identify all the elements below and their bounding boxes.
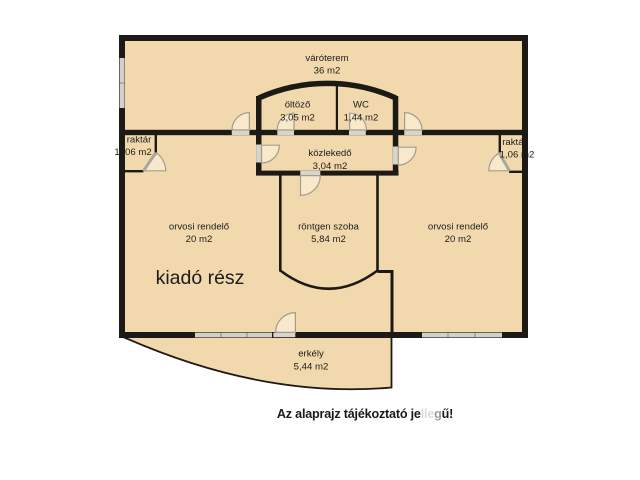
wall-top — [119, 35, 528, 41]
label-erkely-area: 5,44 m2 — [294, 362, 329, 373]
label-wc-area: 1,44 m2 — [344, 113, 379, 124]
label-raktar-right-area: 1,06 m2 — [500, 150, 535, 161]
caption-segment: Az alaprajz tájékoztató je — [277, 407, 421, 421]
wall-rontgen-right — [376, 176, 379, 272]
label-wc-name: WC — [353, 100, 369, 111]
floor-plan-page: váróterem 36 m2 öltöző 3,05 m2 WC 1,44 m… — [0, 0, 640, 480]
label-varoterem-name: váróterem — [305, 53, 348, 64]
label-orvosi-right-name: orvosi rendelő — [428, 222, 488, 233]
label-orvosi-left-name: orvosi rendelő — [169, 222, 229, 233]
label-raktar-right-name: raktár — [502, 137, 527, 148]
caption-segment: ű! — [442, 407, 454, 421]
caption-segment: lle — [421, 407, 435, 421]
wall-core-left — [256, 96, 262, 176]
label-oltozo-area: 3,05 m2 — [280, 113, 315, 124]
doorway-varoterem-left — [232, 130, 250, 135]
wall-raktar-left-side — [155, 135, 157, 153]
caption-text: Az alaprajz tájékoztató jellegű! — [277, 407, 453, 421]
wall-raktar-left-bottom — [122, 170, 144, 172]
label-varoterem-area: 36 m2 — [314, 66, 341, 77]
label-kozlekedo-area: 3,04 m2 — [313, 161, 348, 172]
label-orvosi-left-area: 20 m2 — [186, 234, 213, 245]
floor-plan: váróterem 36 m2 öltöző 3,05 m2 WC 1,44 m… — [0, 0, 640, 480]
label-kozlekedo-name: közlekedő — [308, 148, 351, 159]
window-bottom-right — [422, 333, 502, 338]
label-oltozo-name: öltöző — [285, 100, 311, 111]
doorway-oltozo — [277, 130, 294, 135]
label-erkely-name: erkély — [298, 349, 324, 360]
doorway-wc — [349, 130, 366, 135]
wall-right — [522, 35, 528, 338]
doorway-varoterem-right — [404, 130, 422, 135]
window-bottom-left — [195, 333, 272, 338]
building-floor — [119, 35, 528, 338]
doorway-kozlekedo-left — [256, 145, 261, 163]
caption-segment: g — [434, 407, 442, 421]
wall-rontgen-left — [279, 176, 282, 272]
wall-main-horizontal — [125, 130, 522, 135]
label-raktar-left-area: 1, 06 m2 — [114, 147, 151, 158]
doorway-erkely — [273, 333, 295, 338]
label-rontgen-name: röntgen szoba — [298, 222, 359, 233]
doorway-kozlekedo-right — [393, 147, 398, 165]
wall-oltozo-wc-divider — [336, 84, 338, 130]
wall-raktar-right-bottom — [509, 171, 523, 173]
label-raktar-left-name: raktár — [127, 135, 152, 146]
label-kiado-resz: kiadó rész — [156, 267, 245, 289]
balcony-outline — [121, 336, 392, 389]
label-orvosi-right-area: 20 m2 — [445, 234, 472, 245]
label-rontgen-area: 5,84 m2 — [311, 234, 346, 245]
